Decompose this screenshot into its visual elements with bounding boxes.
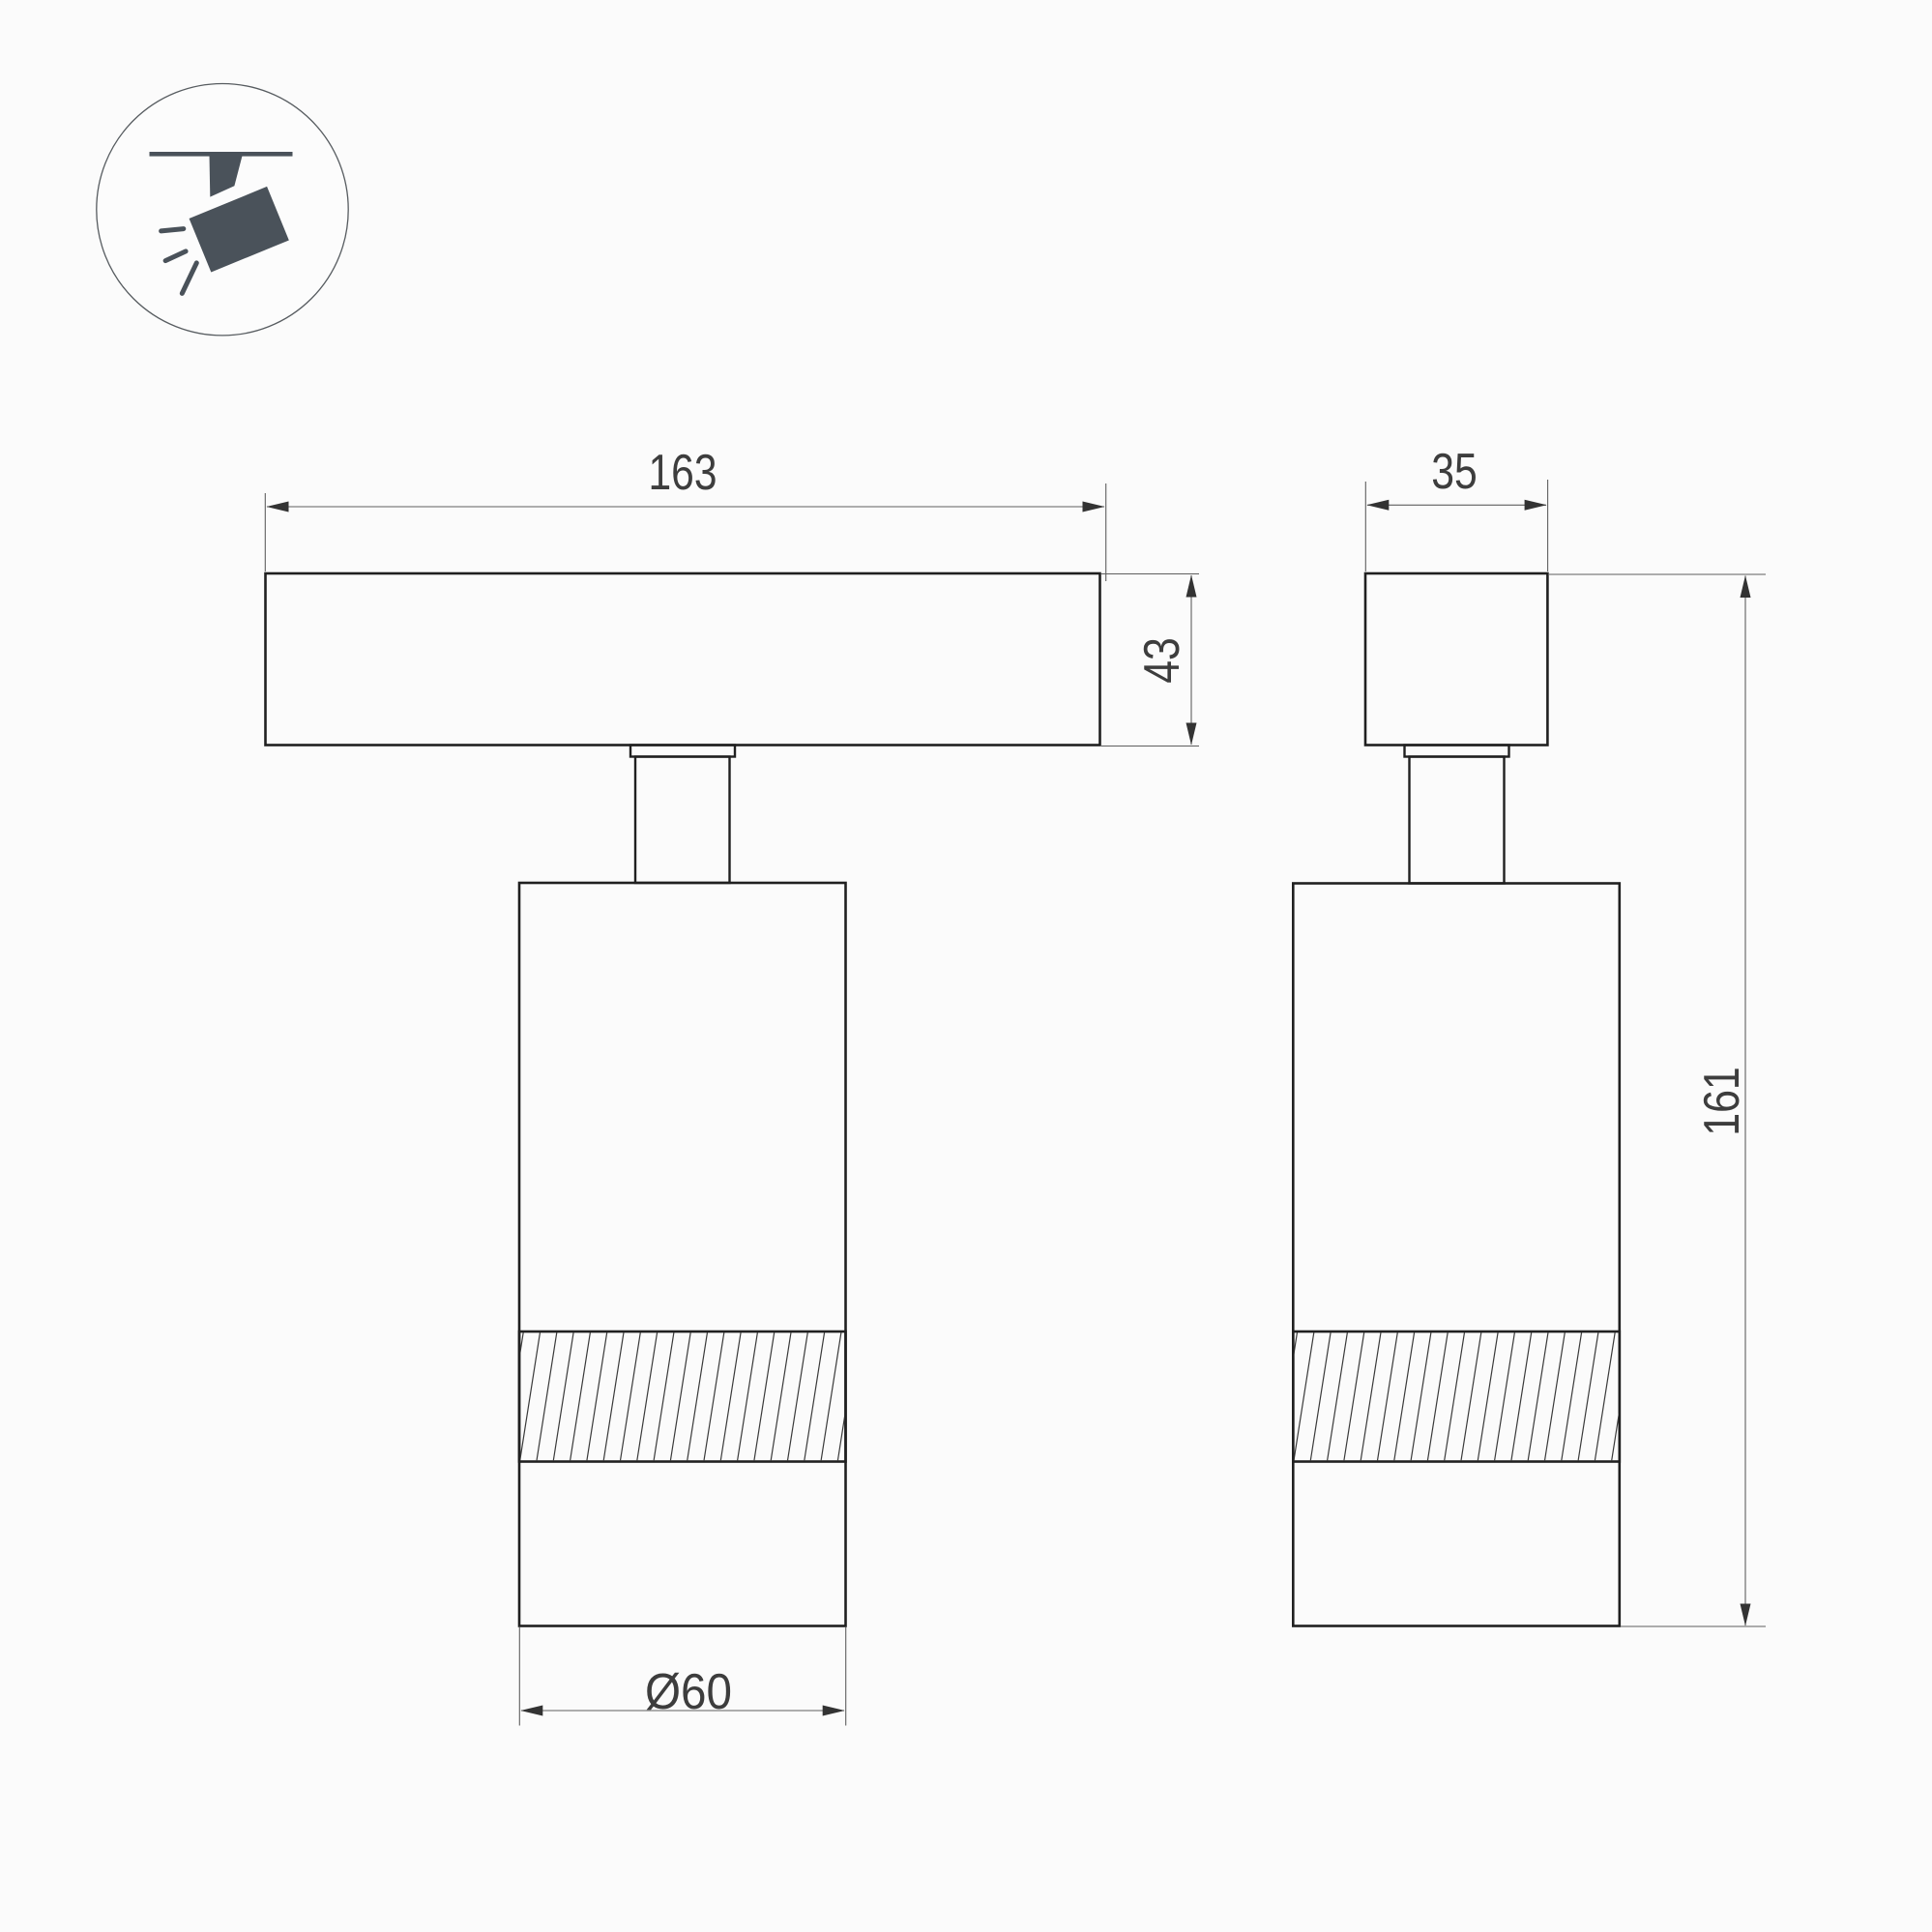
svg-text:35: 35: [1431, 444, 1478, 500]
svg-text:161: 161: [1694, 1067, 1750, 1136]
svg-text:43: 43: [1134, 637, 1190, 684]
svg-text:Ø60: Ø60: [645, 1664, 732, 1720]
svg-text:163: 163: [649, 445, 717, 501]
